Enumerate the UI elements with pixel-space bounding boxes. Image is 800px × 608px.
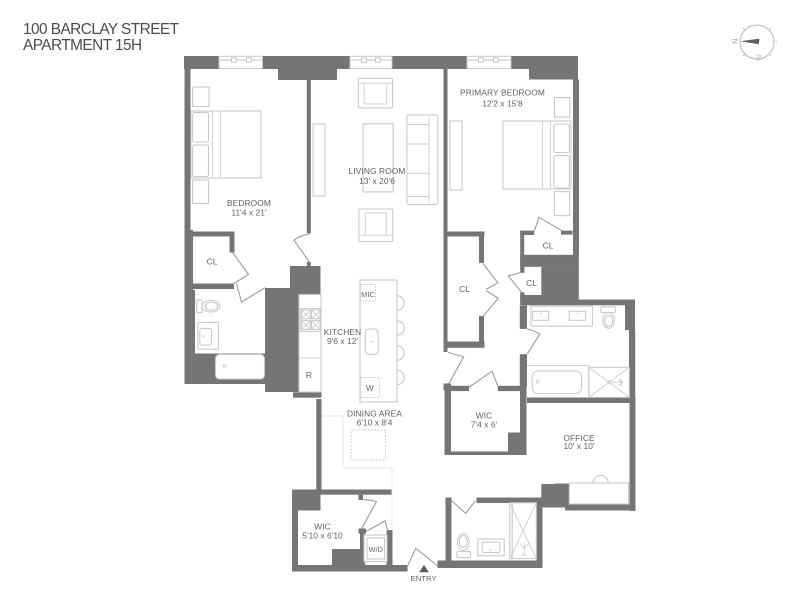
svg-text:N: N	[732, 39, 739, 44]
svg-text:9'6 x 12': 9'6 x 12'	[327, 336, 358, 346]
svg-text:MIC: MIC	[361, 290, 375, 299]
svg-text:7'4 x 6': 7'4 x 6'	[471, 419, 498, 429]
svg-text:12'2 x 15'8: 12'2 x 15'8	[482, 98, 523, 108]
svg-text:ENTRY: ENTRY	[411, 574, 437, 583]
svg-text:W: W	[366, 384, 374, 393]
svg-text:13' x 20'6: 13' x 20'6	[359, 176, 395, 186]
svg-text:10' x 10': 10' x 10'	[563, 441, 594, 451]
svg-text:R: R	[306, 370, 312, 380]
svg-text:E: E	[754, 23, 761, 28]
svg-text:BEDROOM: BEDROOM	[227, 198, 271, 208]
svg-text:5'10 x 6'10: 5'10 x 6'10	[302, 530, 343, 540]
svg-text:PRIMARY BEDROOM: PRIMARY BEDROOM	[460, 87, 545, 97]
svg-text:11'4 x 21': 11'4 x 21'	[231, 208, 267, 218]
svg-text:LIVING ROOM: LIVING ROOM	[349, 166, 406, 176]
svg-text:6'10 x 8'4: 6'10 x 8'4	[357, 417, 393, 427]
svg-text:CL: CL	[543, 240, 554, 250]
svg-text:S: S	[772, 39, 779, 44]
svg-text:CL: CL	[207, 256, 218, 266]
svg-text:W/D: W/D	[369, 545, 383, 554]
svg-text:W: W	[757, 54, 764, 61]
svg-text:CL: CL	[459, 284, 470, 294]
svg-text:CL: CL	[526, 278, 537, 288]
